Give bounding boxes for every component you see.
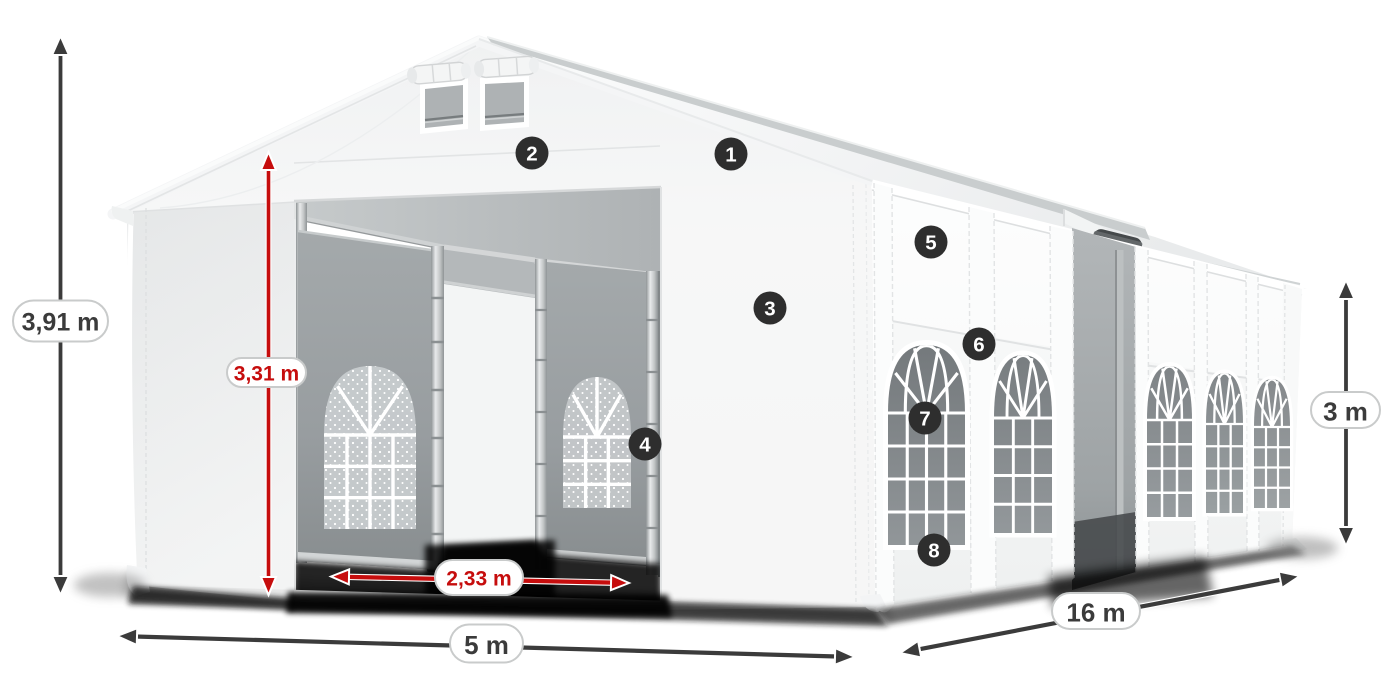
- svg-text:2,33 m: 2,33 m: [446, 568, 511, 591]
- svg-text:8: 8: [928, 540, 939, 563]
- svg-text:5: 5: [925, 232, 936, 255]
- svg-text:1: 1: [725, 144, 736, 167]
- svg-text:3: 3: [764, 298, 775, 321]
- svg-text:5 m: 5 m: [464, 630, 509, 660]
- svg-text:6: 6: [973, 334, 984, 357]
- svg-text:3,91 m: 3,91 m: [22, 309, 100, 337]
- svg-text:4: 4: [639, 434, 651, 457]
- svg-text:7: 7: [919, 408, 930, 431]
- svg-text:2: 2: [526, 143, 537, 166]
- svg-text:3,31 m: 3,31 m: [234, 363, 299, 386]
- svg-text:3 m: 3 m: [1323, 397, 1368, 427]
- svg-text:16 m: 16 m: [1066, 598, 1125, 628]
